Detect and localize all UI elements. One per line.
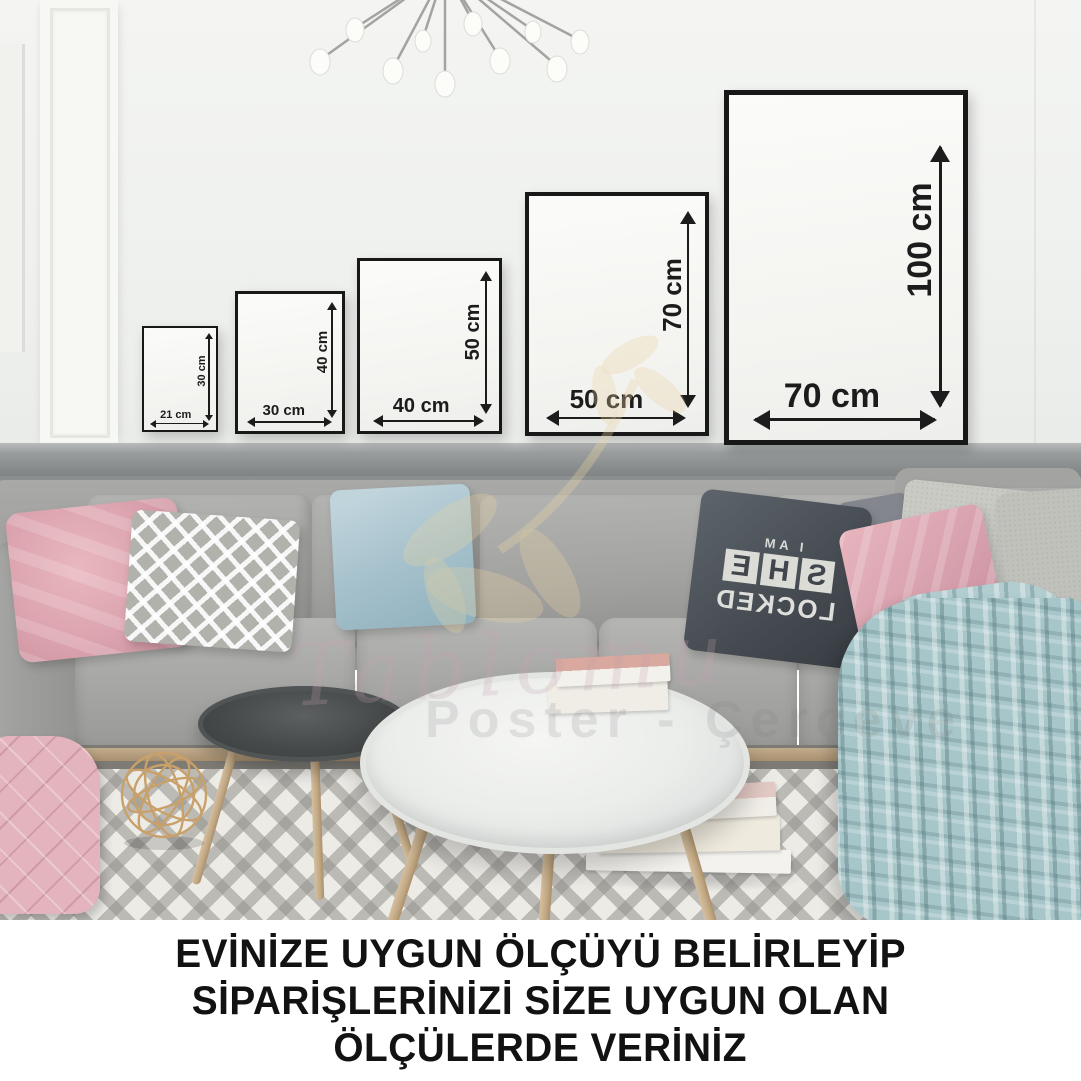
- width-dimension-label: 40 cm: [360, 395, 482, 418]
- footer-line-2: SİPARİŞLERİNİZİ SİZE UYGUN OLAN: [192, 978, 890, 1025]
- poster-frame-70x100: 100 cm 70 cm: [724, 90, 968, 445]
- geometric-x-pattern-pillow: [124, 509, 301, 652]
- footer-line-1: EVİNİZE UYGUN ÖLÇÜYÜ BELİRLEYİP: [175, 931, 906, 978]
- poster-frame-21x30: 30 cm 21 cm: [142, 326, 218, 432]
- height-dimension-label: 70 cm: [657, 258, 688, 332]
- footer-line-3: ÖLÇÜLERDE VERİNİZ: [334, 1025, 748, 1072]
- pilaster-panel-molding: [50, 8, 110, 438]
- living-room-poster-size-guide: 30 cm 21 cm 40 cm 30 cm 50 cm 40 cm 70 c…: [0, 0, 1081, 1081]
- height-dimension-label: 40 cm: [314, 330, 331, 373]
- blue-pillow: [329, 483, 476, 630]
- height-dimension-label: 50 cm: [462, 304, 485, 361]
- poster-frame-40x50: 50 cm 40 cm: [357, 258, 502, 434]
- chunky-knit-blanket: [838, 598, 1081, 928]
- width-dimension-label: 50 cm: [529, 384, 684, 415]
- width-dimension-label: 30 cm: [238, 402, 330, 419]
- width-dimension-label: 70 cm: [729, 377, 935, 416]
- width-dimension-label: 21 cm: [144, 409, 207, 421]
- height-dimension-label: 30 cm: [196, 355, 208, 386]
- book-on-table: [555, 653, 670, 687]
- width-dimension-arrow: [548, 417, 684, 420]
- width-dimension-arrow: [152, 423, 207, 425]
- width-dimension-arrow: [249, 421, 329, 423]
- pink-pouf: [0, 736, 100, 914]
- footer-text-band: EVİNİZE UYGUN ÖLÇÜYÜ BELİRLEYİP SİPARİŞL…: [0, 920, 1081, 1081]
- mirrored-pillow-text: I AM SHE LOCKED: [712, 530, 843, 629]
- gold-wire-sphere: [112, 745, 218, 851]
- sherlocked-pillow: I AM SHE LOCKED: [683, 488, 873, 670]
- height-dimension-arrow: [208, 335, 210, 419]
- width-dimension-arrow: [375, 420, 482, 422]
- height-dimension-label: 100 cm: [900, 182, 939, 297]
- wall-pilaster: [40, 0, 118, 446]
- width-dimension-arrow: [755, 418, 935, 421]
- poster-frame-50x70: 70 cm 50 cm: [525, 192, 709, 436]
- poster-frame-30x40: 40 cm 30 cm: [235, 291, 345, 434]
- pillow-text-line1: I AM: [760, 534, 804, 554]
- wall-corner: [1034, 0, 1036, 445]
- left-wall-panel: [0, 44, 25, 352]
- branch-chandelier: [295, 0, 595, 100]
